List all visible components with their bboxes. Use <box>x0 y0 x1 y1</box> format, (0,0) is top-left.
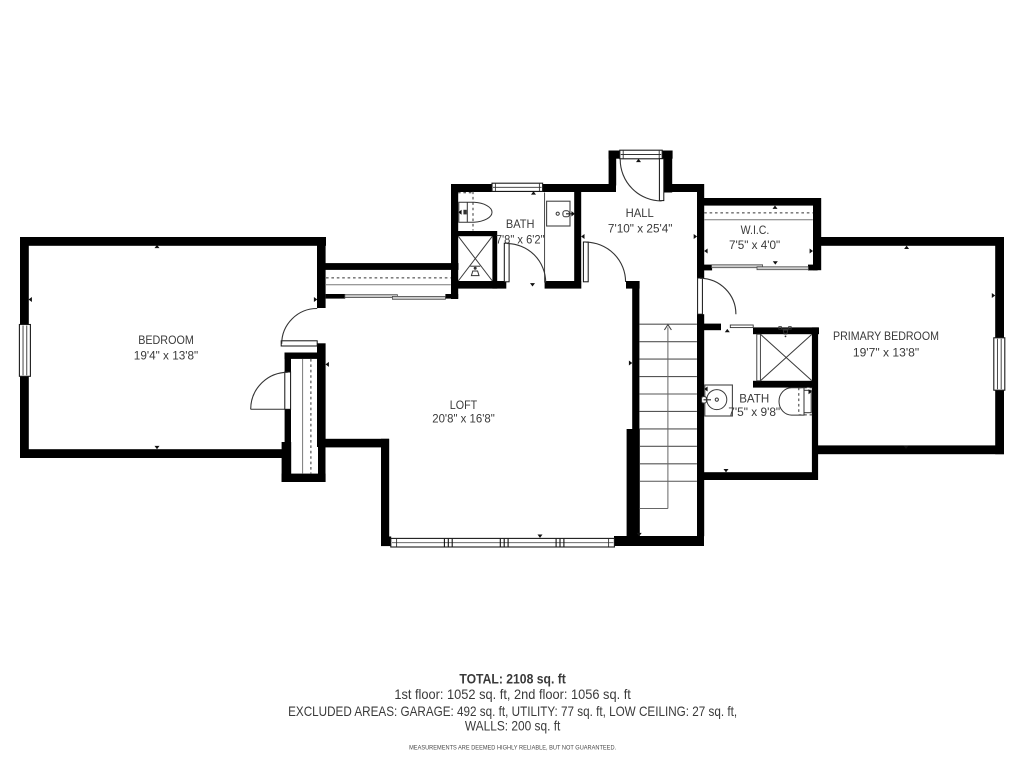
svg-text:1st floor: 1052 sq. ft, 2nd fl: 1st floor: 1052 sq. ft, 2nd floor: 1056 … <box>394 687 631 702</box>
svg-text:20'8" x 16'8": 20'8" x 16'8" <box>432 412 495 426</box>
svg-text:W.I.C.: W.I.C. <box>741 223 770 237</box>
svg-text:TOTAL: 2108 sq. ft: TOTAL: 2108 sq. ft <box>459 672 566 687</box>
svg-text:7'8" x 6'2": 7'8" x 6'2" <box>496 233 545 247</box>
svg-text:HALL: HALL <box>626 206 654 220</box>
svg-text:7'10" x 25'4": 7'10" x 25'4" <box>608 222 673 236</box>
svg-text:EXCLUDED AREAS: GARAGE: 492 sq: EXCLUDED AREAS: GARAGE: 492 sq. ft, UTIL… <box>288 704 737 719</box>
svg-text:MEASUREMENTS ARE DEEMED HIGHLY: MEASUREMENTS ARE DEEMED HIGHLY RELIABLE,… <box>409 745 616 752</box>
svg-text:PRIMARY BEDROOM: PRIMARY BEDROOM <box>833 329 939 343</box>
svg-text:LOFT: LOFT <box>450 398 478 412</box>
svg-text:WALLS: 200 sq. ft: WALLS: 200 sq. ft <box>465 718 561 733</box>
svg-text:19'7" x 13'8": 19'7" x 13'8" <box>853 345 919 359</box>
svg-text:7'5" x 4'0": 7'5" x 4'0" <box>729 238 780 252</box>
svg-text:BEDROOM: BEDROOM <box>138 333 194 347</box>
svg-text:7'5" x 9'8": 7'5" x 9'8" <box>728 405 780 419</box>
svg-text:BATH: BATH <box>506 217 535 231</box>
svg-text:19'4" x 13'8": 19'4" x 13'8" <box>134 349 198 363</box>
svg-text:BATH: BATH <box>739 392 769 406</box>
